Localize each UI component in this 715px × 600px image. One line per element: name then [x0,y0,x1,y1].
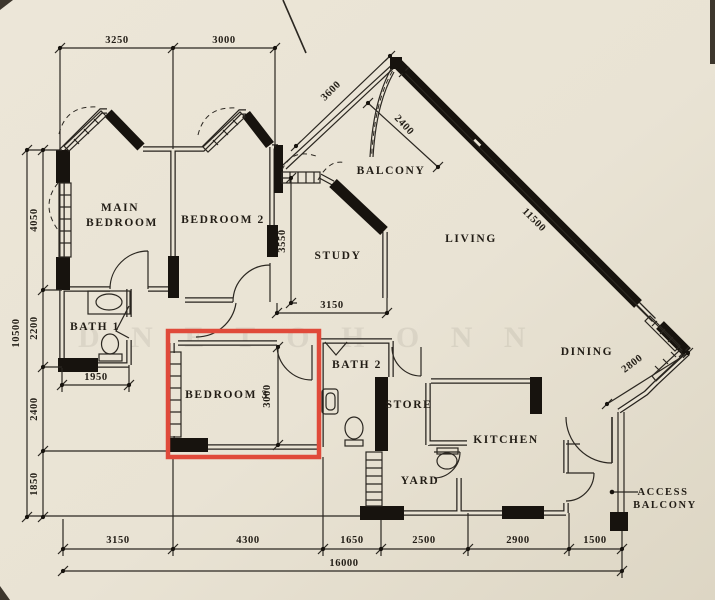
watermark-text: D N E T O H O N N [78,321,538,354]
dim-bottom-1500: 1500 [583,535,606,546]
dim-top-3250: 3250 [105,35,128,46]
room-label-store: STORE [386,399,433,411]
dim-left-total: 10500 [11,318,22,347]
room-label-access-balcony-line2: BALCONY [633,500,697,511]
room-label-main-bedroom-line1: MAIN [101,202,139,214]
room-label-bath1: BATH 1 [70,321,120,333]
room-label-kitchen: KITCHEN [473,434,539,446]
dim-bottom-4300: 4300 [236,535,259,546]
dim-left-4050: 4050 [29,208,40,231]
room-label-bedroom2: BEDROOM 2 [181,214,265,226]
room-label-access-balcony-line1: ACCESS [637,487,688,498]
paper-background [0,0,715,600]
room-label-bath2: BATH 2 [332,359,382,371]
dim-left-2200: 2200 [29,316,40,339]
dim-study-width: 3150 [320,300,343,311]
dim-left-2400: 2400 [29,397,40,420]
room-label-balcony: BALCONY [357,165,426,177]
room-label-yard: YARD [401,475,440,487]
dim-bath1-width: 1950 [84,372,107,383]
dim-bottom-3150: 3150 [106,535,129,546]
room-label-dining: DINING [561,346,613,358]
dim-left-1850: 1850 [29,472,40,495]
room-label-living: LIVING [445,233,497,245]
dim-bottom-2500: 2500 [412,535,435,546]
dim-bottom-2900: 2900 [506,535,529,546]
floor-plan-drawing: D N E T O H O N N [0,0,715,600]
dim-bottom-total: 16000 [329,558,358,569]
room-label-main-bedroom-line2: BEDROOM [86,217,158,229]
room-label-bedroom3: BEDROOM 3 [185,389,269,401]
dim-top-3000: 3000 [212,35,235,46]
floor-plan-scan: D N E T O H O N N [0,0,715,600]
dim-bottom-1650: 1650 [340,535,363,546]
room-label-study: STUDY [315,250,362,262]
dim-study-height: 3550 [277,229,288,252]
